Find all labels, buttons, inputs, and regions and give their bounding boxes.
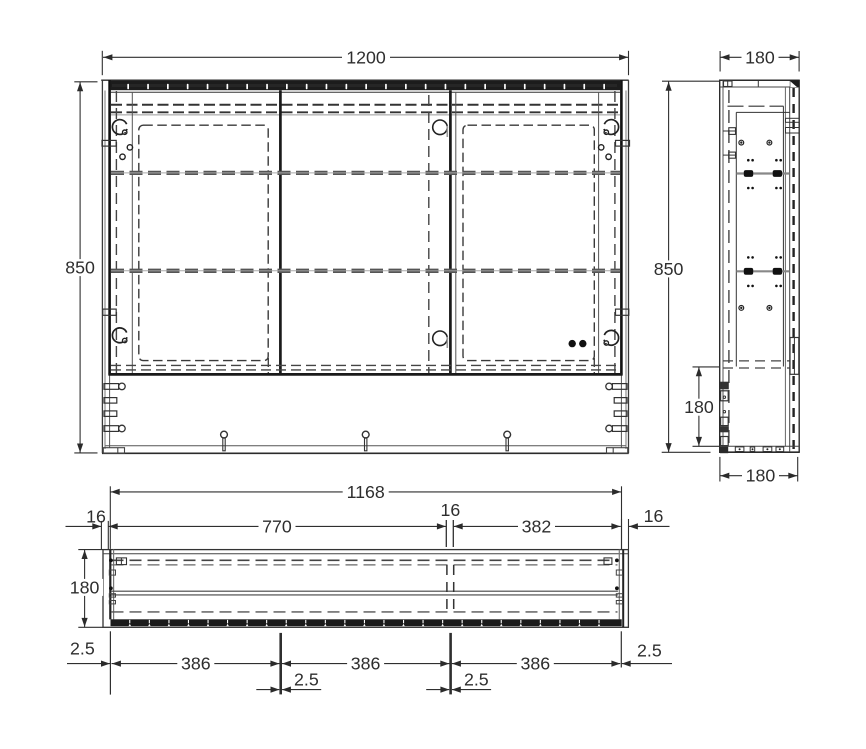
svg-text:386: 386: [351, 654, 381, 674]
svg-text:180: 180: [745, 47, 775, 67]
svg-text:16: 16: [441, 500, 461, 520]
svg-text:1200: 1200: [346, 47, 386, 67]
svg-text:180: 180: [70, 577, 100, 597]
svg-text:770: 770: [262, 516, 292, 536]
svg-text:16: 16: [644, 506, 664, 526]
svg-text:386: 386: [181, 654, 211, 674]
svg-text:850: 850: [65, 258, 95, 278]
svg-text:2.5: 2.5: [70, 638, 95, 658]
svg-text:180: 180: [684, 397, 714, 417]
svg-text:386: 386: [520, 654, 550, 674]
svg-text:2.5: 2.5: [464, 670, 489, 690]
svg-text:850: 850: [654, 259, 684, 279]
svg-text:16: 16: [86, 507, 106, 527]
svg-text:2.5: 2.5: [294, 670, 319, 690]
svg-text:382: 382: [522, 516, 552, 536]
svg-text:1168: 1168: [347, 482, 385, 502]
svg-text:180: 180: [746, 466, 776, 486]
svg-text:2.5: 2.5: [637, 640, 662, 660]
